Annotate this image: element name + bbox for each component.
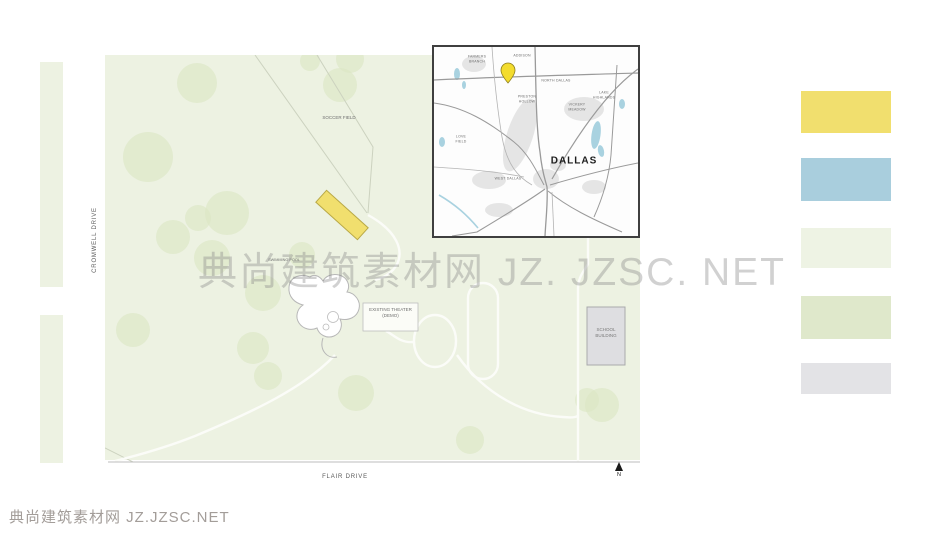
north-label: N bbox=[611, 472, 627, 478]
tree-canopy-circle bbox=[123, 132, 173, 182]
location-map-inset: FARMERS BRANCHADDISONNORTH DALLASPRESTON… bbox=[432, 45, 640, 238]
map-area-label: WEST DALLAS bbox=[495, 177, 522, 182]
legend-swatch-existing-building bbox=[801, 363, 891, 394]
tree-canopy-circle bbox=[254, 362, 282, 390]
map-area-label: NORTH DALLAS bbox=[541, 79, 570, 84]
tree-canopy-circle bbox=[338, 375, 374, 411]
tree-canopy-circle bbox=[177, 63, 217, 103]
map-city-label: DALLAS bbox=[551, 155, 598, 168]
tree-canopy-circle bbox=[116, 313, 150, 347]
tree-canopy-circle bbox=[237, 332, 269, 364]
legend-swatch-open-lawn bbox=[801, 228, 891, 268]
existing-theater-label: EXISTING THEATER (DEMO) bbox=[363, 307, 418, 318]
map-area-label: PRESTON HOLLOW bbox=[518, 94, 536, 103]
tree-canopy-circle bbox=[456, 426, 484, 454]
tree-canopy-circle bbox=[205, 191, 249, 235]
map-area-label: ADDISON bbox=[513, 54, 530, 59]
tree-canopy-circle bbox=[156, 220, 190, 254]
map-area-label: VICKERY MEADOW bbox=[568, 102, 585, 111]
site-location-pin bbox=[501, 63, 515, 83]
legend-swatch-water bbox=[801, 158, 891, 201]
tree-canopy-circle bbox=[585, 388, 619, 422]
legend-swatch-proposed-building bbox=[801, 91, 891, 133]
site-plan-sheet: CROMWELL DRIVE FLAIR DRIVE bbox=[0, 0, 950, 534]
watermark-center: 典尚建筑素材网 JZ. JZSC. NET bbox=[198, 241, 786, 297]
school-building-label: SCHOOL BUILDING bbox=[587, 327, 625, 338]
planting-strip-bottom bbox=[40, 315, 63, 463]
soccer-field-label: SOCCER FIELD bbox=[313, 115, 365, 121]
north-arrow: N bbox=[611, 462, 627, 478]
map-area-label: LAKE HIGHLANDS bbox=[593, 90, 615, 99]
urban-areas bbox=[462, 56, 606, 217]
map-area-label: FARMERS BRANCH bbox=[468, 54, 486, 63]
north-arrow-icon bbox=[615, 462, 623, 471]
flair-drive-label: FLAIR DRIVE bbox=[322, 474, 368, 480]
map-area-label: LOVE FIELD bbox=[456, 134, 467, 143]
watermark-footer: 典尚建筑素材网 JZ.JZSC.NET bbox=[9, 506, 230, 527]
planting-strip-top bbox=[40, 62, 63, 287]
cromwell-drive-label: CROMWELL DRIVE bbox=[92, 207, 98, 273]
tree-canopy-circle bbox=[185, 205, 211, 231]
legend-swatch-tree-canopy bbox=[801, 296, 891, 339]
